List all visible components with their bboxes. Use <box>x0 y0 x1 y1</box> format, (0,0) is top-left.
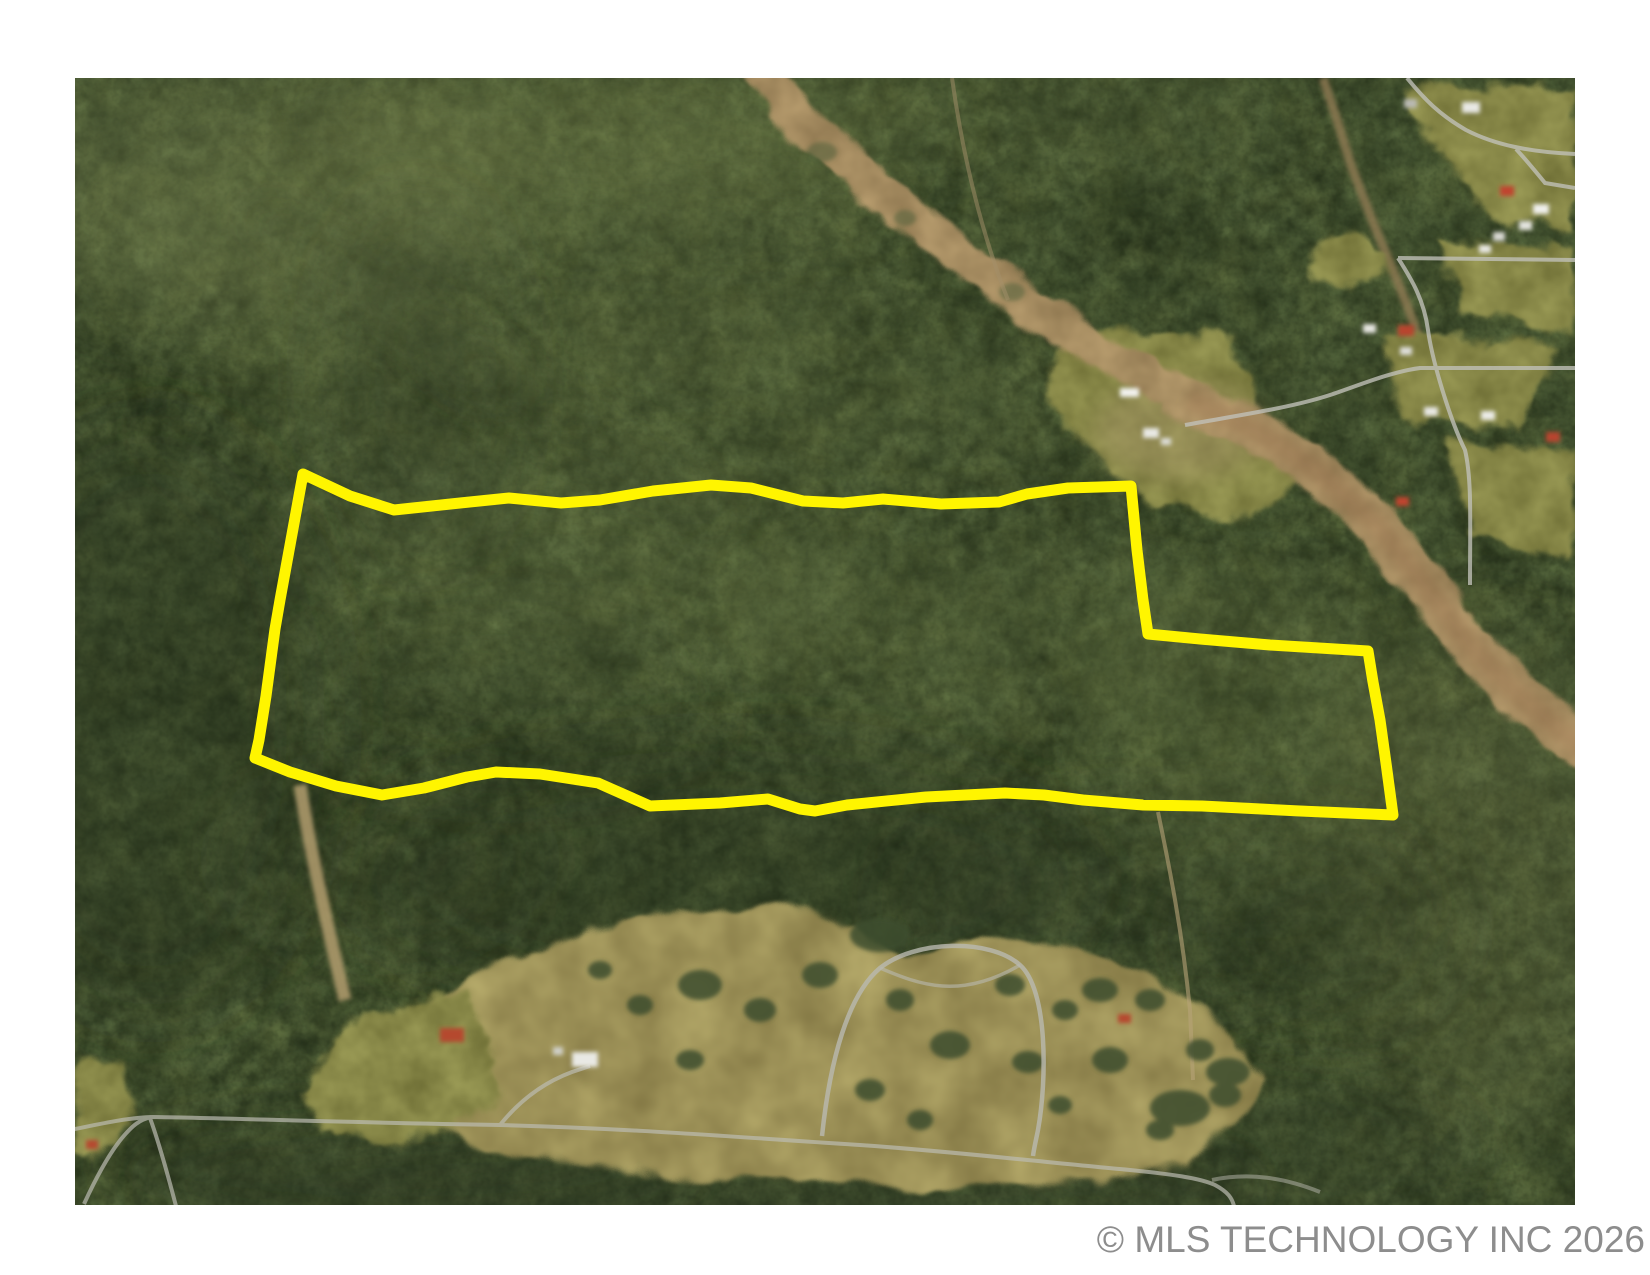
svg-text:© MLS TECHNOLOGY INC 2026: © MLS TECHNOLOGY INC 2026 <box>1097 1219 1645 1260</box>
